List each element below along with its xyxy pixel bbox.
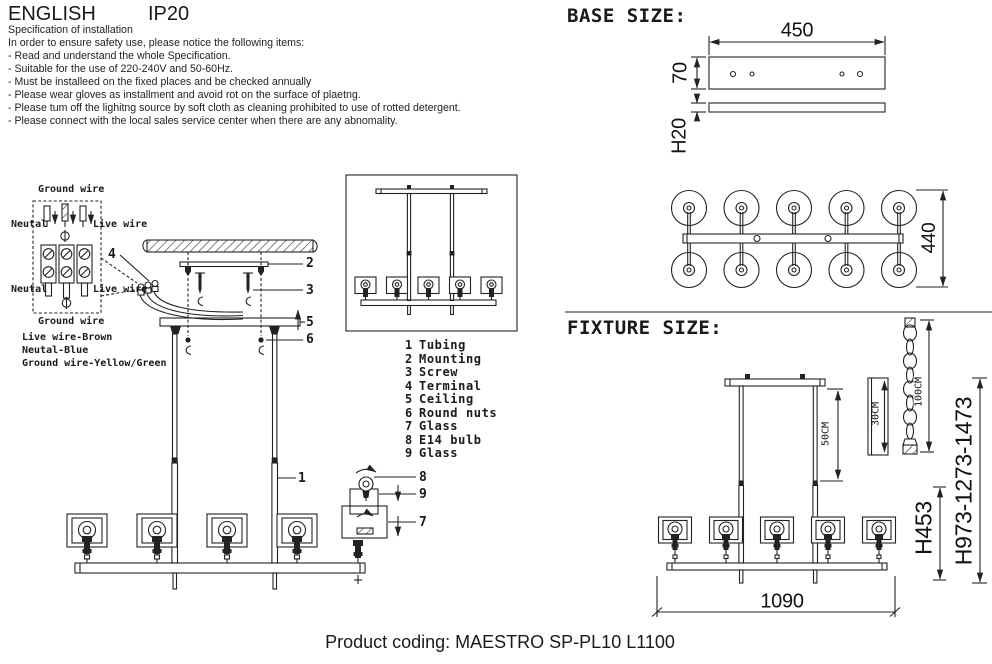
callout-2: 2 [306, 256, 314, 271]
parts-row: 2Mounting [405, 353, 497, 367]
dim-chain: 100CM [914, 376, 925, 408]
parts-row: 3Screw [405, 366, 497, 380]
dim-rod-segment: 30CM [871, 402, 882, 426]
callout-5: 5 [306, 315, 314, 330]
neutral-top-label: Neutal [11, 219, 47, 230]
dim-plate-thickness: H20 [669, 118, 692, 154]
dim-plate-height: 70 [670, 62, 693, 84]
fixture-front-view [652, 374, 987, 617]
top-view-drawing [672, 190, 949, 288]
spec-intro: In order to ensure safety use, please no… [8, 37, 461, 50]
wire-color-legend: Live wire-Brown Neutal-Blue Ground wire-… [22, 331, 167, 370]
base-size-drawing [691, 36, 885, 121]
dim-overall-height: H973-1273-1473 [951, 397, 978, 565]
suspension-rods [172, 334, 296, 589]
ground-wire-bottom-label: Ground wire [38, 316, 104, 327]
live-wire-top-label: Live wire [93, 219, 147, 230]
dim-base-width: 450 [781, 20, 813, 43]
legend-ground: Ground wire-Yellow/Green [22, 357, 167, 370]
parts-row: 1Tubing [405, 339, 497, 353]
callout-9: 9 [419, 487, 427, 502]
product-coding: Product coding: MAESTRO SP-PL10 L1100 [325, 632, 675, 653]
base-size-title: BASE SIZE: [567, 5, 686, 27]
spec-item: - Please tum off the lighitng source by … [8, 102, 461, 115]
dim-depth: 440 [919, 223, 941, 254]
parts-row: 4Terminal [405, 380, 497, 394]
parts-list: 1Tubing 2Mounting 3Screw 4Terminal 5Ceil… [405, 339, 497, 461]
spec-item: - Read and understand the whole Specific… [8, 50, 461, 63]
spec-item: - Please wear gloves as installment and … [8, 89, 461, 102]
callout-6: 6 [306, 332, 314, 347]
callout-7: 7 [419, 515, 427, 530]
parts-row: 9Glass [405, 447, 497, 461]
language-label: ENGLISH [8, 3, 96, 26]
spec-item: - Must be installeed on the fixed places… [8, 76, 461, 89]
spec-item: - Suitable for the use of 220-240V and 5… [8, 63, 461, 76]
dim-rod-upper: 50CM [821, 422, 832, 446]
fixture-size-title: FIXTURE SIZE: [567, 317, 722, 339]
spec-sheet: ENGLISH IP20 Specification of installati… [0, 0, 992, 664]
callout-3: 3 [306, 283, 314, 298]
dim-length: 1090 [760, 591, 803, 614]
dim-fixture-height: H453 [911, 501, 938, 555]
callout-4: 4 [108, 247, 116, 262]
parts-row: 8E14 bulb [405, 434, 497, 448]
legend-live: Live wire-Brown [22, 331, 167, 344]
wiring-terminal-diagram [33, 201, 101, 313]
ground-wire-top-label: Ground wire [38, 184, 104, 195]
neutral-bottom-label: Neutal [11, 284, 47, 295]
bulb-assembly-detail [342, 469, 416, 538]
ceiling-mounting-diagram [143, 240, 317, 354]
ip-rating-label: IP20 [148, 3, 189, 26]
parts-row: 5Ceiling [405, 393, 497, 407]
inset-overview [346, 175, 517, 331]
parts-row: 6Round nuts [405, 407, 497, 421]
fixture-bar-install [67, 514, 365, 584]
spec-title: Specification of installation [8, 24, 461, 37]
spec-block: Specification of installation In order t… [8, 24, 461, 128]
spec-item: - Please connect with the local sales se… [8, 115, 461, 128]
legend-neutral: Neutal-Blue [22, 344, 167, 357]
parts-row: 7Glass [405, 420, 497, 434]
live-wire-bottom-label: Live wire [93, 284, 147, 295]
callout-1: 1 [298, 471, 306, 486]
callout-8: 8 [419, 470, 427, 485]
